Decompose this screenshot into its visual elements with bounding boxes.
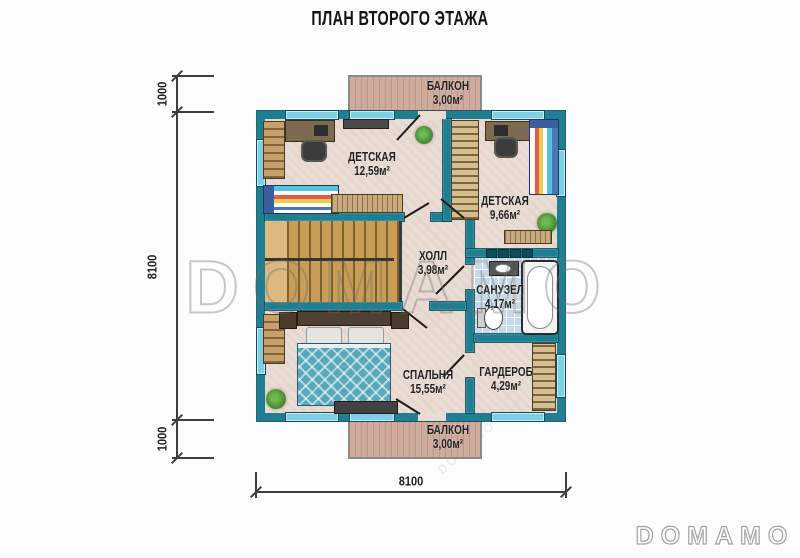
door-opening <box>418 413 446 421</box>
nightstand <box>392 313 408 328</box>
dimension-value: 1000 <box>155 427 170 452</box>
bed-headboard <box>298 312 390 325</box>
dresser <box>505 231 551 243</box>
plant <box>415 126 433 144</box>
laptop <box>314 125 328 136</box>
wall <box>466 378 474 413</box>
vent-block <box>499 250 508 257</box>
balcony-slider-door <box>350 111 394 119</box>
room-label-bathroom: САНУЗЕЛ4,17м² <box>476 283 524 311</box>
room-label-kids2: ДЕТСКАЯ9,66м² <box>481 194 529 222</box>
kids-bed <box>530 120 558 194</box>
vent-block <box>487 250 496 257</box>
office-chair <box>301 140 327 162</box>
pillow <box>306 327 342 345</box>
wall-shelf <box>344 120 388 128</box>
wall <box>265 213 404 221</box>
kids-bed <box>264 186 338 213</box>
clothes-rack <box>533 344 555 410</box>
bathtub <box>521 260 559 335</box>
plant <box>266 389 286 409</box>
room-label-balcony-top: БАЛКОН3,00м² <box>427 79 469 107</box>
office-chair <box>494 137 518 158</box>
plant <box>537 213 557 233</box>
wall <box>466 290 474 352</box>
wall <box>474 334 558 342</box>
closet-rack <box>452 121 478 219</box>
room-label-kids1: ДЕТСКАЯ12,59м² <box>348 150 396 178</box>
pillow <box>348 327 384 345</box>
wall <box>265 302 402 310</box>
room-label-bedroom: СПАЛЬНЯ15,55м² <box>403 368 453 396</box>
staircase <box>265 221 402 302</box>
wall <box>430 302 466 310</box>
window <box>557 355 565 397</box>
wall <box>443 119 451 221</box>
window <box>286 413 338 421</box>
vent-block <box>523 250 532 257</box>
dimension-value: 8100 <box>399 474 424 489</box>
sink <box>490 262 518 275</box>
dimension-line <box>176 75 178 458</box>
room-label-balcony-bottom: БАЛКОН3,00м² <box>427 423 469 451</box>
dresser <box>332 195 402 212</box>
laptop <box>494 125 508 136</box>
balcony-slider-door <box>350 413 394 421</box>
dimension-value: 8100 <box>145 255 160 280</box>
desk <box>286 121 334 141</box>
tv-cabinet <box>335 402 397 413</box>
brand-logo: DOMAMO <box>630 522 800 551</box>
room-label-wardrobe: ГАРДЕРОБ4,29м² <box>479 365 533 393</box>
bookshelf <box>264 122 284 178</box>
window <box>557 150 565 196</box>
window <box>286 111 338 119</box>
room-label-hall: ХОЛЛ3,98м² <box>418 249 448 277</box>
dimension-line <box>255 491 567 493</box>
dimension-value: 1000 <box>155 82 170 107</box>
window <box>492 111 544 119</box>
nightstand <box>280 313 296 328</box>
window <box>492 413 544 421</box>
vent-block <box>511 250 520 257</box>
page-title: ПЛАН ВТОРОГО ЭТАЖА <box>0 8 800 31</box>
floor-plan-page: ПЛАН ВТОРОГО ЭТАЖА DOMAMO DOMAMO DOMAMO … <box>0 0 800 558</box>
door-opening <box>418 111 446 119</box>
bed-duvet <box>298 344 390 405</box>
